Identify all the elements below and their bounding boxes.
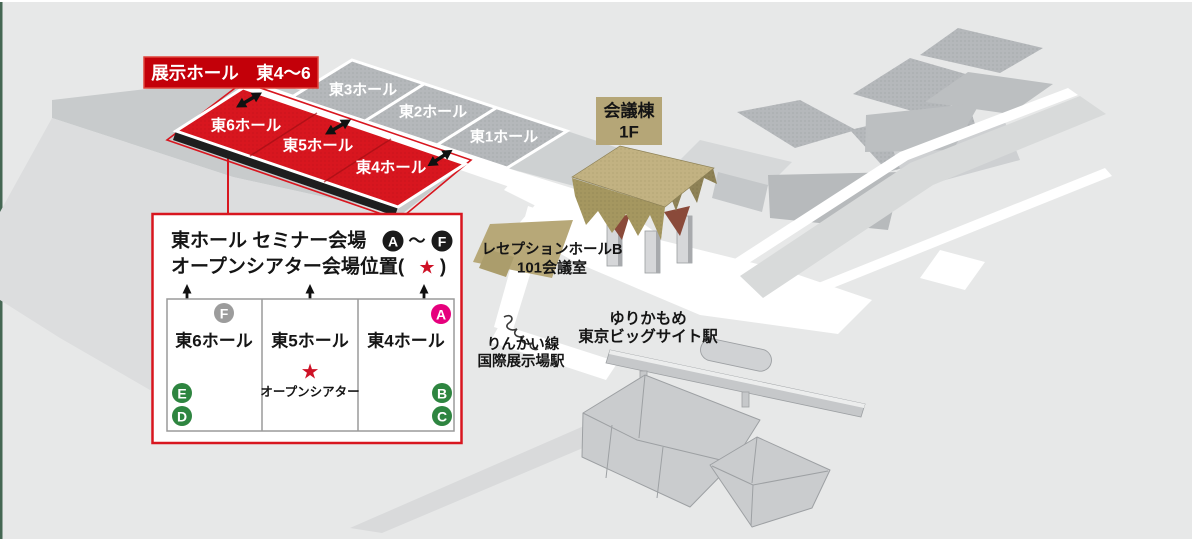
badge-b-letter: B	[437, 386, 447, 402]
plan-hall-east4: 東4ホール	[367, 331, 444, 351]
exhibition-hall-tag: 展示ホール 東4～6	[144, 57, 318, 88]
seminar-legend-box: 東ホール セミナー会場 A ～ F オープンシアター会場位置( ★ ) 東6ホー…	[153, 214, 462, 443]
hall-label-east2: 東2ホール	[399, 103, 467, 121]
open-theater-star: ★	[301, 361, 320, 384]
legend-title-line2: オープンシアター会場位置(	[171, 255, 405, 278]
reception-label-line1: レセプションホールB	[482, 241, 623, 258]
yurikamome-line2: 東京ビッグサイト駅	[578, 327, 718, 346]
open-theater-label: オープンシアター	[260, 384, 359, 399]
legend-title-close-paren: )	[440, 257, 446, 278]
hall-label-east6: 東6ホール	[211, 116, 282, 135]
hall-label-east3: 東3ホール	[329, 81, 397, 99]
hall-label-east4: 東4ホール	[356, 158, 427, 177]
conference-label-line2: 1F	[619, 123, 639, 142]
badge-a-title-letter: A	[388, 234, 398, 250]
badge-e-letter: E	[177, 386, 186, 402]
badge-f-title-letter: F	[438, 234, 447, 250]
track-pillar	[742, 392, 749, 407]
badge-d-letter: D	[177, 409, 187, 425]
rinkai-line1: りんかい線	[487, 335, 560, 353]
reception-label-line2: 101会議室	[517, 259, 587, 277]
conference-label-line1: 会議棟	[604, 101, 656, 121]
plan-hall-east6: 東6ホール	[175, 331, 252, 351]
badge-a-letter: A	[436, 307, 446, 323]
badge-c-letter: C	[437, 409, 447, 425]
legend-title-tilde: ～	[409, 232, 426, 251]
badge-f-letter: F	[220, 306, 229, 322]
tag-label: 展示ホール 東4～6	[151, 63, 311, 83]
plan-hall-east5: 東5ホール	[271, 331, 348, 351]
legend-title-line1: 東ホール セミナー会場	[171, 229, 366, 252]
rinkai-line2: 国際展示場駅	[478, 352, 565, 370]
hall-label-east1: 東1ホール	[470, 128, 538, 146]
legend-title-star: ★	[418, 258, 435, 279]
venue-map: 東3ホール 東2ホール 東1ホール 東6ホール 東5ホール 東4ホール 展示ホー…	[0, 0, 1192, 539]
top-edge-strip	[0, 0, 1192, 2]
yurikamome-line1: ゆりかもめ	[609, 310, 687, 328]
hall-label-east5: 東5ホール	[283, 136, 354, 155]
